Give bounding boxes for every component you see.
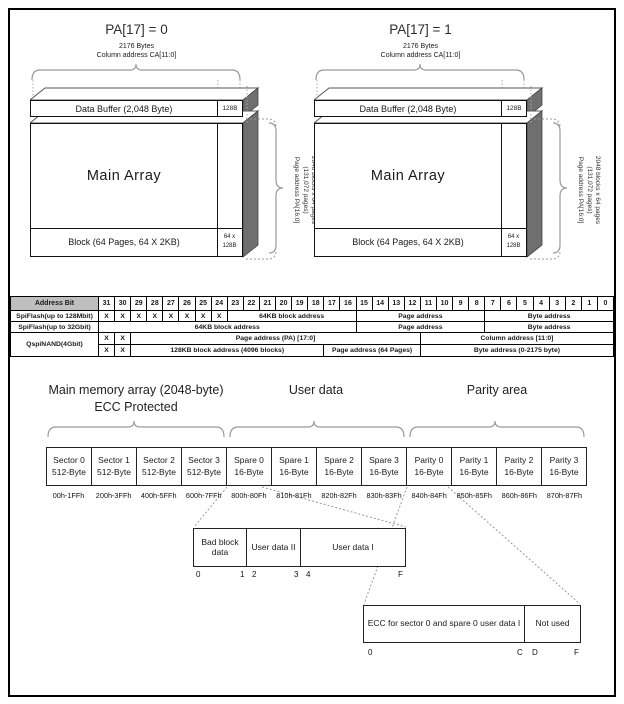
memory-cell: Spare 3 16-Byte — [361, 447, 407, 486]
memory-cell: Parity 3 16-Byte — [541, 447, 587, 486]
memory-cell-name: Parity 2 — [505, 455, 534, 466]
parity-tick-d: D — [532, 648, 538, 657]
column-brace — [316, 64, 524, 80]
memory-cell-name: Parity 0 — [415, 455, 444, 466]
parity0-detail-box: ECC for sector 0 and spare 0 user data I… — [363, 605, 582, 643]
spare-tick-4: 4 — [306, 570, 310, 579]
memory-cell-name: Sector 3 — [188, 455, 220, 466]
x-cell: X — [131, 311, 147, 322]
bit-column-header: 8 — [469, 297, 485, 311]
memory-cell-size: 16-Byte — [414, 467, 443, 478]
column-address-span: Column address [11:0] — [420, 333, 613, 345]
memory-cell-name: Parity 3 — [550, 455, 579, 466]
byte-address-span: Byte address — [485, 311, 614, 322]
bytes-label: 2176 Bytes — [314, 43, 527, 50]
block-unit-line2: 128B — [222, 242, 236, 251]
memory-diagram-pa17-1: PA[17] = 1 2176 Bytes Column address CA[… — [314, 14, 604, 276]
memory-cell-size: 16-Byte — [504, 467, 533, 478]
memory-cell-size: 512-Byte — [52, 467, 86, 478]
memory-cell-range: 870h-87Fh — [542, 491, 587, 500]
bit-column-header: 1 — [581, 297, 597, 311]
block-unit: 64 x 128B — [217, 228, 242, 255]
parity-tick-c: C — [517, 648, 523, 657]
bit-column-header: 3 — [549, 297, 565, 311]
bit-column-header: 2 — [565, 297, 581, 311]
memory-map-cells: Sector 0 512-Byte Sector 1 512-Byte Sect… — [46, 447, 587, 486]
row-label: SpiFlash(up to 32Gbit) — [11, 322, 99, 333]
row-label: SpiFlash(up to 128Mbit) — [11, 311, 99, 322]
diagram-title: PA[17] = 1 — [314, 22, 527, 37]
buffer-top-face — [314, 88, 542, 100]
qspinand-row-b: X X 128KB block address (4096 blocks) Pa… — [11, 345, 614, 357]
memory-cell-size: 512-Byte — [187, 467, 221, 478]
memory-cell-size: 16-Byte — [549, 467, 578, 478]
data-buffer-label: Data Buffer (2,048 Byte) — [31, 101, 217, 116]
spare0-detail-box: Bad block data User data II User data I — [193, 528, 408, 567]
group-label-parity-area: Parity area — [427, 383, 567, 397]
row-label: QspiNAND(4Gbit) — [11, 333, 99, 357]
group-label-user-data: User data — [246, 383, 386, 397]
user-data-2-cell: User data II — [246, 528, 301, 567]
main-side-face — [243, 111, 258, 257]
memory-cell-range: 850h-85Fh — [452, 491, 497, 500]
page-address-span: Page address — [356, 311, 485, 322]
bit-column-header: 24 — [211, 297, 227, 311]
memory-cell: Parity 0 16-Byte — [406, 447, 452, 486]
spiflash-128mbit-row: SpiFlash(up to 128Mbit) X X X X X X X X … — [11, 311, 614, 322]
bit-column-header: 11 — [420, 297, 436, 311]
data-buffer-box: Data Buffer (2,048 Byte) 128B — [30, 100, 243, 117]
page-brace — [553, 123, 567, 253]
x-cell: X — [115, 333, 131, 345]
memory-cell-size: 16-Byte — [279, 467, 308, 478]
bit-column-header: 16 — [340, 297, 356, 311]
block-address-span: 128KB block address (4096 blocks) — [131, 345, 324, 357]
memory-cell: Spare 1 16-Byte — [271, 447, 317, 486]
table-header-row: Address Bit 3130292827262524232221201918… — [11, 297, 614, 311]
spare-tick-1: 1 — [240, 570, 244, 579]
spare-tick-f: F — [398, 570, 403, 579]
x-cell: X — [195, 311, 211, 322]
bit-column-header: 18 — [308, 297, 324, 311]
bit-column-header: 21 — [259, 297, 275, 311]
spare-tick-2: 2 — [252, 570, 256, 579]
memory-cell-size: 512-Byte — [97, 467, 131, 478]
block-label: Block (64 Pages, 64 X 2KB) — [31, 228, 217, 255]
bytes-label: 2176 Bytes — [30, 43, 243, 50]
memory-cell: Spare 0 16-Byte — [226, 447, 272, 486]
memory-cell: Sector 1 512-Byte — [91, 447, 137, 486]
memory-cell-range: 830h-83Fh — [362, 491, 407, 500]
main-array-label: Main Array — [31, 124, 217, 228]
memory-cell-range: 860h-86Fh — [497, 491, 542, 500]
memory-cell-name: Sector 2 — [143, 455, 175, 466]
x-cell: X — [115, 345, 131, 357]
address-bit-table: Address Bit 3130292827262524232221201918… — [10, 296, 614, 357]
memory-cell-size: 512-Byte — [142, 467, 176, 478]
block-address-span: 64KB block address — [227, 311, 356, 322]
parity-tick-0: 0 — [368, 648, 372, 657]
page-address-span: Page address — [356, 322, 485, 333]
memory-cell-range: 00h-1FFh — [46, 491, 91, 500]
spare-tick-3: 3 — [294, 570, 298, 579]
column-address-label: Column address CA[11:0] — [30, 52, 243, 59]
memory-cell-name: Sector 0 — [53, 455, 85, 466]
main-array-box: Main Array Block (64 Pages, 64 X 2KB) 64… — [30, 123, 243, 257]
memory-map-ranges: 00h-1FFh 200h-3FFh 400h-5FFh 600h-7FFh 8… — [46, 491, 587, 500]
ecc-cell: ECC for sector 0 and spare 0 user data I — [363, 605, 525, 643]
x-cell: X — [179, 311, 195, 322]
memory-cell-name: Spare 1 — [279, 455, 309, 466]
memory-diagram-pa17-0: PA[17] = 0 2176 Bytes Column address CA[… — [30, 14, 320, 276]
memory-cell-name: Spare 0 — [234, 455, 264, 466]
memory-cell: Sector 0 512-Byte — [46, 447, 92, 486]
bit-column-header: 13 — [388, 297, 404, 311]
bad-block-data-cell: Bad block data — [193, 528, 247, 567]
x-cell: X — [163, 311, 179, 322]
byte-address-span: Byte address (0-2175 byte) — [420, 345, 613, 357]
memory-cell-size: 16-Byte — [459, 467, 488, 478]
group-label-main-array-line1: Main memory array (2048-byte) — [26, 383, 246, 397]
parity-tick-f: F — [574, 648, 579, 657]
not-used-cell: Not used — [524, 605, 581, 643]
memory-cell: Sector 3 512-Byte — [181, 447, 227, 486]
bit-column-header: 26 — [179, 297, 195, 311]
main-side-face — [527, 111, 542, 257]
memory-cell-size: 16-Byte — [324, 467, 353, 478]
memory-cell-range: 820h-82Fh — [316, 491, 361, 500]
memory-cell-range: 200h-3FFh — [91, 491, 136, 500]
bit-column-header: 0 — [597, 297, 613, 311]
spiflash-32gbit-row: SpiFlash(up to 32Gbit) 64KB block addres… — [11, 322, 614, 333]
bit-column-header: 15 — [356, 297, 372, 311]
side-label-line3: Page address PA[16:0] — [292, 115, 300, 265]
bit-column-header: 27 — [163, 297, 179, 311]
memory-cell: Parity 1 16-Byte — [451, 447, 497, 486]
bit-column-header: 4 — [533, 297, 549, 311]
bit-column-header: 6 — [501, 297, 517, 311]
memory-cell-range: 400h-5FFh — [136, 491, 181, 500]
memory-cell-name: Spare 2 — [324, 455, 354, 466]
page-address-pa-span: Page address (PA) [17:0] — [131, 333, 421, 345]
bit-column-header: 20 — [276, 297, 292, 311]
data-buffer-unit: 128B — [501, 101, 526, 116]
memory-cell-name: Sector 1 — [98, 455, 130, 466]
main-array-label: Main Array — [315, 124, 501, 228]
side-label-line3: Page address PA[16:0] — [576, 115, 584, 265]
column-address-label: Column address CA[11:0] — [314, 52, 527, 59]
block-label: Block (64 Pages, 64 X 2KB) — [315, 228, 501, 255]
x-cell: X — [99, 345, 115, 357]
user-data-1-cell: User data I — [300, 528, 406, 567]
bit-column-header: 31 — [99, 297, 115, 311]
page-brace — [269, 123, 283, 253]
x-cell: X — [99, 311, 115, 322]
block-unit-line1: 64 x — [508, 233, 519, 242]
memory-cell-size: 16-Byte — [234, 467, 263, 478]
data-buffer-unit: 128B — [217, 101, 242, 116]
bit-column-header: 9 — [453, 297, 469, 311]
bit-column-header: 22 — [243, 297, 259, 311]
block-unit: 64 x 128B — [501, 228, 526, 255]
page-address-span: Page address (64 Pages) — [324, 345, 421, 357]
bit-column-header: 23 — [227, 297, 243, 311]
byte-address-span: Byte address — [485, 322, 614, 333]
figure-page: PA[17] = 0 2176 Bytes Column address CA[… — [0, 0, 624, 704]
main-array-box: Main Array Block (64 Pages, 64 X 2KB) 64… — [314, 123, 527, 257]
memory-cell-size: 16-Byte — [369, 467, 398, 478]
bit-column-header: 28 — [147, 297, 163, 311]
spare-tick-0: 0 — [196, 570, 200, 579]
block-unit-line2: 128B — [506, 242, 520, 251]
bit-column-header: 10 — [436, 297, 452, 311]
page-address-side-label: 2048 blocks x 64 pages (131,072 pages) P… — [575, 115, 601, 265]
address-bit-header: Address Bit — [11, 297, 99, 311]
memory-cell-name: Parity 1 — [460, 455, 489, 466]
side-label-line1: 2048 blocks x 64 pages — [593, 115, 601, 265]
memory-cell: Sector 2 512-Byte — [136, 447, 182, 486]
data-buffer-box: Data Buffer (2,048 Byte) 128B — [314, 100, 527, 117]
memory-cell-range: 600h-7FFh — [181, 491, 226, 500]
bit-column-header: 7 — [485, 297, 501, 311]
bit-column-header: 29 — [131, 297, 147, 311]
bit-column-header: 5 — [517, 297, 533, 311]
memory-cell: Spare 2 16-Byte — [316, 447, 362, 486]
memory-cell-range: 800h-80Fh — [226, 491, 271, 500]
x-cell: X — [211, 311, 227, 322]
side-label-line2: (131,072 pages) — [300, 115, 308, 265]
block-address-span: 64KB block address — [99, 322, 357, 333]
bit-column-header: 12 — [404, 297, 420, 311]
bit-column-header: 25 — [195, 297, 211, 311]
column-brace — [32, 64, 240, 80]
bit-column-header: 17 — [324, 297, 340, 311]
memory-cell-range: 810h-81Fh — [271, 491, 316, 500]
bit-column-header: 30 — [115, 297, 131, 311]
bit-column-header: 19 — [292, 297, 308, 311]
group-label-main-array-line2: ECC Protected — [26, 400, 246, 414]
memory-cell: Parity 2 16-Byte — [496, 447, 542, 486]
x-cell: X — [147, 311, 163, 322]
memory-cell-range: 840h-84Fh — [407, 491, 452, 500]
diagram-title: PA[17] = 0 — [30, 22, 243, 37]
qspinand-row-a: QspiNAND(4Gbit) X X Page address (PA) [1… — [11, 333, 614, 345]
side-label-line2: (131,072 pages) — [584, 115, 592, 265]
buffer-top-face — [30, 88, 258, 100]
data-buffer-label: Data Buffer (2,048 Byte) — [315, 101, 501, 116]
memory-cell-name: Spare 3 — [369, 455, 399, 466]
bit-column-header: 14 — [372, 297, 388, 311]
x-cell: X — [115, 311, 131, 322]
block-unit-line1: 64 x — [224, 233, 235, 242]
x-cell: X — [99, 333, 115, 345]
